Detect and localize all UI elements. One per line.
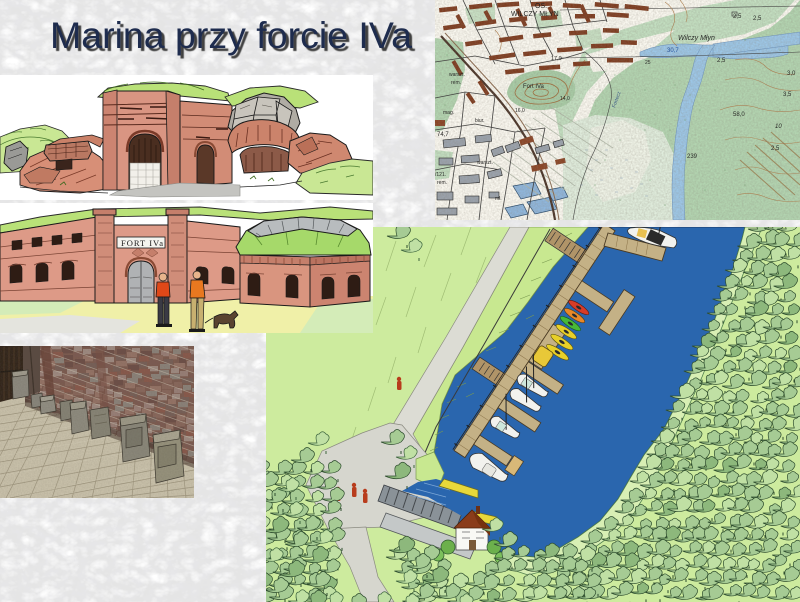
svg-text:FORT IVa: FORT IVa [121,238,164,248]
